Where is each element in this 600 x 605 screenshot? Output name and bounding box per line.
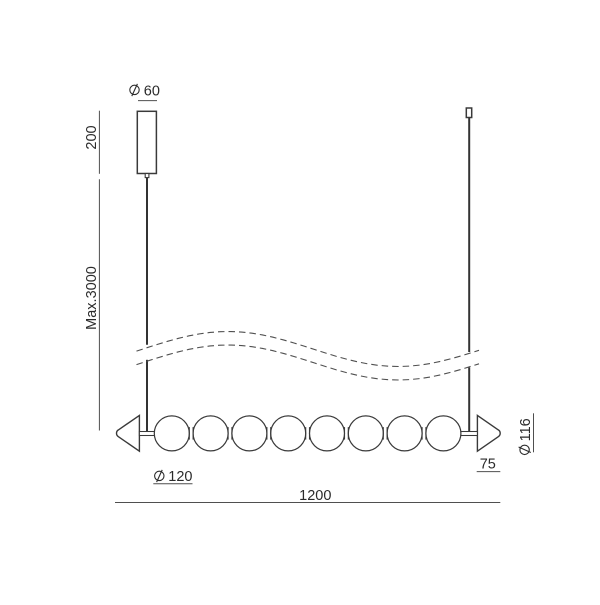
svg-text:1200: 1200: [299, 488, 331, 504]
svg-text:120: 120: [168, 469, 192, 485]
svg-text:60: 60: [144, 83, 160, 99]
svg-text:116: 116: [518, 418, 534, 441]
svg-text:200: 200: [84, 125, 100, 149]
svg-text:Max.3000: Max.3000: [84, 266, 100, 330]
svg-text:75: 75: [480, 457, 496, 473]
